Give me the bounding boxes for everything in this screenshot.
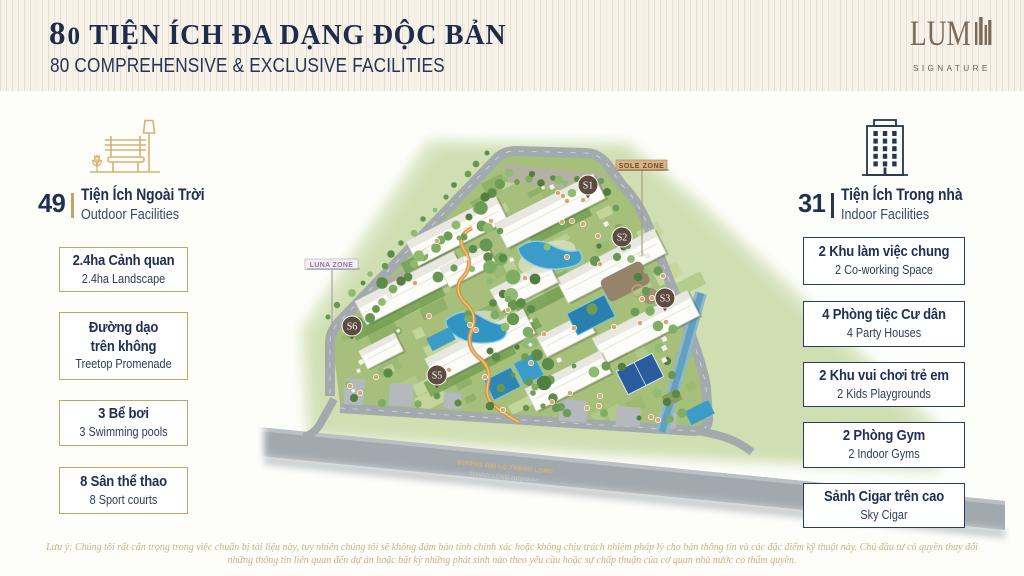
- svg-text:S6: S6: [347, 322, 358, 333]
- svg-text:S2: S2: [617, 233, 628, 244]
- svg-text:LUM: LUM: [910, 14, 971, 53]
- svg-text:S3: S3: [660, 294, 671, 305]
- svg-text:S5: S5: [432, 371, 443, 382]
- svg-text:SIGNATURE: SIGNATURE: [913, 64, 991, 73]
- svg-text:S1: S1: [583, 181, 594, 192]
- svg-text:LUNA ZONE: LUNA ZONE: [310, 262, 354, 269]
- svg-text:SOLE ZONE: SOLE ZONE: [619, 163, 665, 170]
